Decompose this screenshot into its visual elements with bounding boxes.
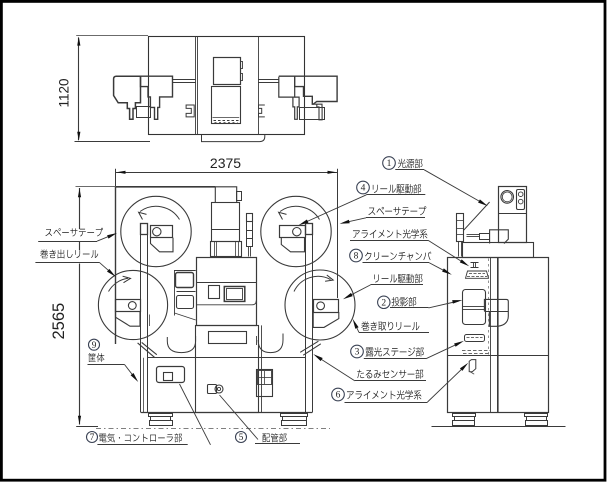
svg-text:1120: 1120 xyxy=(57,78,72,107)
svg-text:7: 7 xyxy=(90,432,95,442)
svg-text:9: 9 xyxy=(92,340,97,350)
svg-text:2565: 2565 xyxy=(50,303,68,340)
svg-text:5: 5 xyxy=(239,432,244,442)
svg-text:8: 8 xyxy=(354,252,359,262)
svg-text:2375: 2375 xyxy=(210,155,241,171)
svg-text:1: 1 xyxy=(387,159,392,169)
svg-text:3: 3 xyxy=(355,348,360,358)
svg-text:2: 2 xyxy=(381,299,386,309)
svg-text:4: 4 xyxy=(361,184,366,194)
svg-text:6: 6 xyxy=(336,391,341,401)
